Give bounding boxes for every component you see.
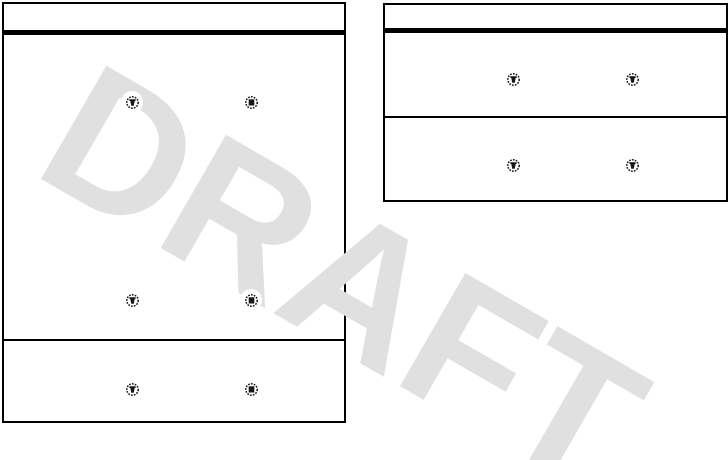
trapezoid-key-icon <box>621 154 643 176</box>
left-table-row-1 <box>4 35 344 341</box>
manual-draft-page: DRAFT <box>0 0 728 460</box>
right-table-header-row <box>385 5 726 33</box>
trapezoid-key-icon <box>621 68 643 90</box>
trapezoid-key-icon <box>121 289 143 311</box>
left-table-header-row <box>4 4 344 35</box>
trapezoid-key-icon <box>502 154 524 176</box>
square-key-icon <box>240 91 262 113</box>
square-key-icon <box>240 378 262 400</box>
trapezoid-key-icon <box>121 91 143 113</box>
square-key-icon <box>240 289 262 311</box>
trapezoid-key-icon <box>502 68 524 90</box>
left-table <box>2 2 346 423</box>
trapezoid-key-icon <box>121 378 143 400</box>
right-table-row-2 <box>385 118 726 200</box>
left-table-row-2 <box>4 341 344 421</box>
right-table <box>383 3 728 202</box>
right-table-row-1 <box>385 33 726 118</box>
